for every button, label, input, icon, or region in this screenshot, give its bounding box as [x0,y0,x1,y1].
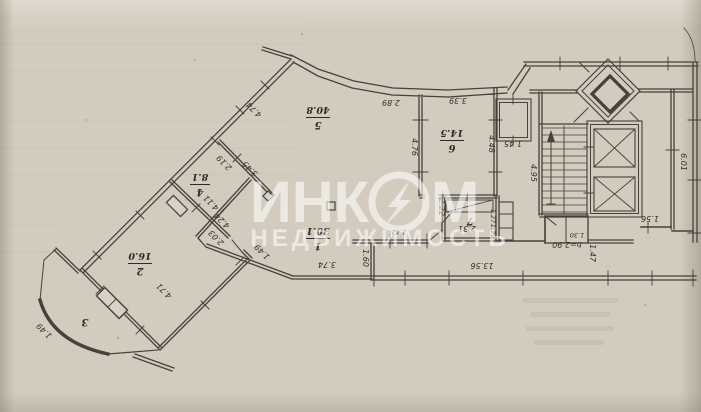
dim-lobby-depth: 1.47 [588,244,597,263]
svg-text:16.0: 16.0 [128,250,152,261]
dim-partition56: 4.76 [410,138,419,156]
watermark-subtitle: НЕДВИЖИМОСТЬ [250,225,509,252]
dim-shaft: 1.45 [504,139,522,148]
svg-text:2: 2 [136,265,144,276]
room-label-3: 3 [81,316,88,327]
svg-text:8.1: 8.1 [192,171,209,182]
dim-top-curve: 2.89 [382,98,400,107]
dim-room1-bottom: 3.74 [318,260,336,269]
svg-text:14.5: 14.5 [440,127,464,138]
svg-text:4: 4 [196,186,203,197]
svg-text:5: 5 [314,119,321,130]
dim-staircase: 4.95 [529,164,538,182]
ceiling-height-label: h=2.90 [552,240,582,249]
dim-corridor-length: 13.56 [471,261,494,270]
dim-room6-right: 4.48 [487,135,496,153]
dim-lobby-small: 1.30 [570,231,584,239]
dim-room7-depth-a: 1.27 [489,209,497,224]
floor-plan-svg: 5 40.8 6 14.5 4 8.1 2 16.0 1 30.1 7 3 4.… [0,0,701,412]
svg-text:6: 6 [448,142,455,153]
dim-right-stub: 1.56 [641,214,659,223]
dim-right-side: 6.01 [679,153,688,171]
dim-room6-top: 3.39 [449,96,467,105]
svg-text:40.8: 40.8 [306,104,330,115]
scanned-floor-plan-page: 5 40.8 6 14.5 4 8.1 2 16.0 1 30.1 7 3 4.… [0,0,701,412]
